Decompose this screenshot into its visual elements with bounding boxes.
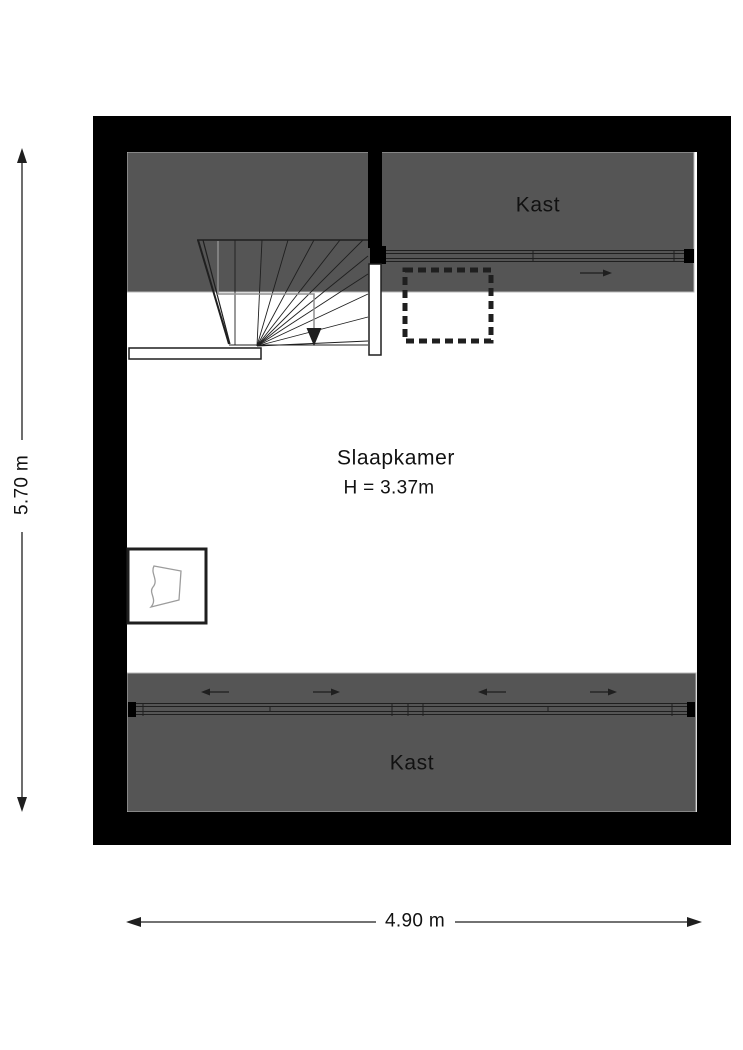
stair-landing-edge <box>129 348 261 359</box>
dimension-width-value: 4.90 m <box>385 912 445 931</box>
dimension-arrow-down-icon <box>17 797 27 812</box>
dimension-arrow-right-icon <box>687 917 702 927</box>
bedroom-label: Slaapkamer <box>337 448 455 469</box>
stair-partition <box>369 264 381 355</box>
bedroom-ceiling-height: H = 3.37m <box>344 479 435 498</box>
closet-bottom-label: Kast <box>390 753 434 774</box>
dimension-arrow-left-icon <box>126 917 141 927</box>
closet-top-label: Kast <box>516 195 560 216</box>
floor-plan: Kast Slaapkamer H = 3.37m Kast 5.70 m 4.… <box>0 0 743 1050</box>
floor-plan-drawing <box>0 0 743 1050</box>
dimension-height-value: 5.70 m <box>13 455 32 515</box>
roof-window <box>128 549 206 623</box>
dimension-arrow-up-icon <box>17 148 27 163</box>
